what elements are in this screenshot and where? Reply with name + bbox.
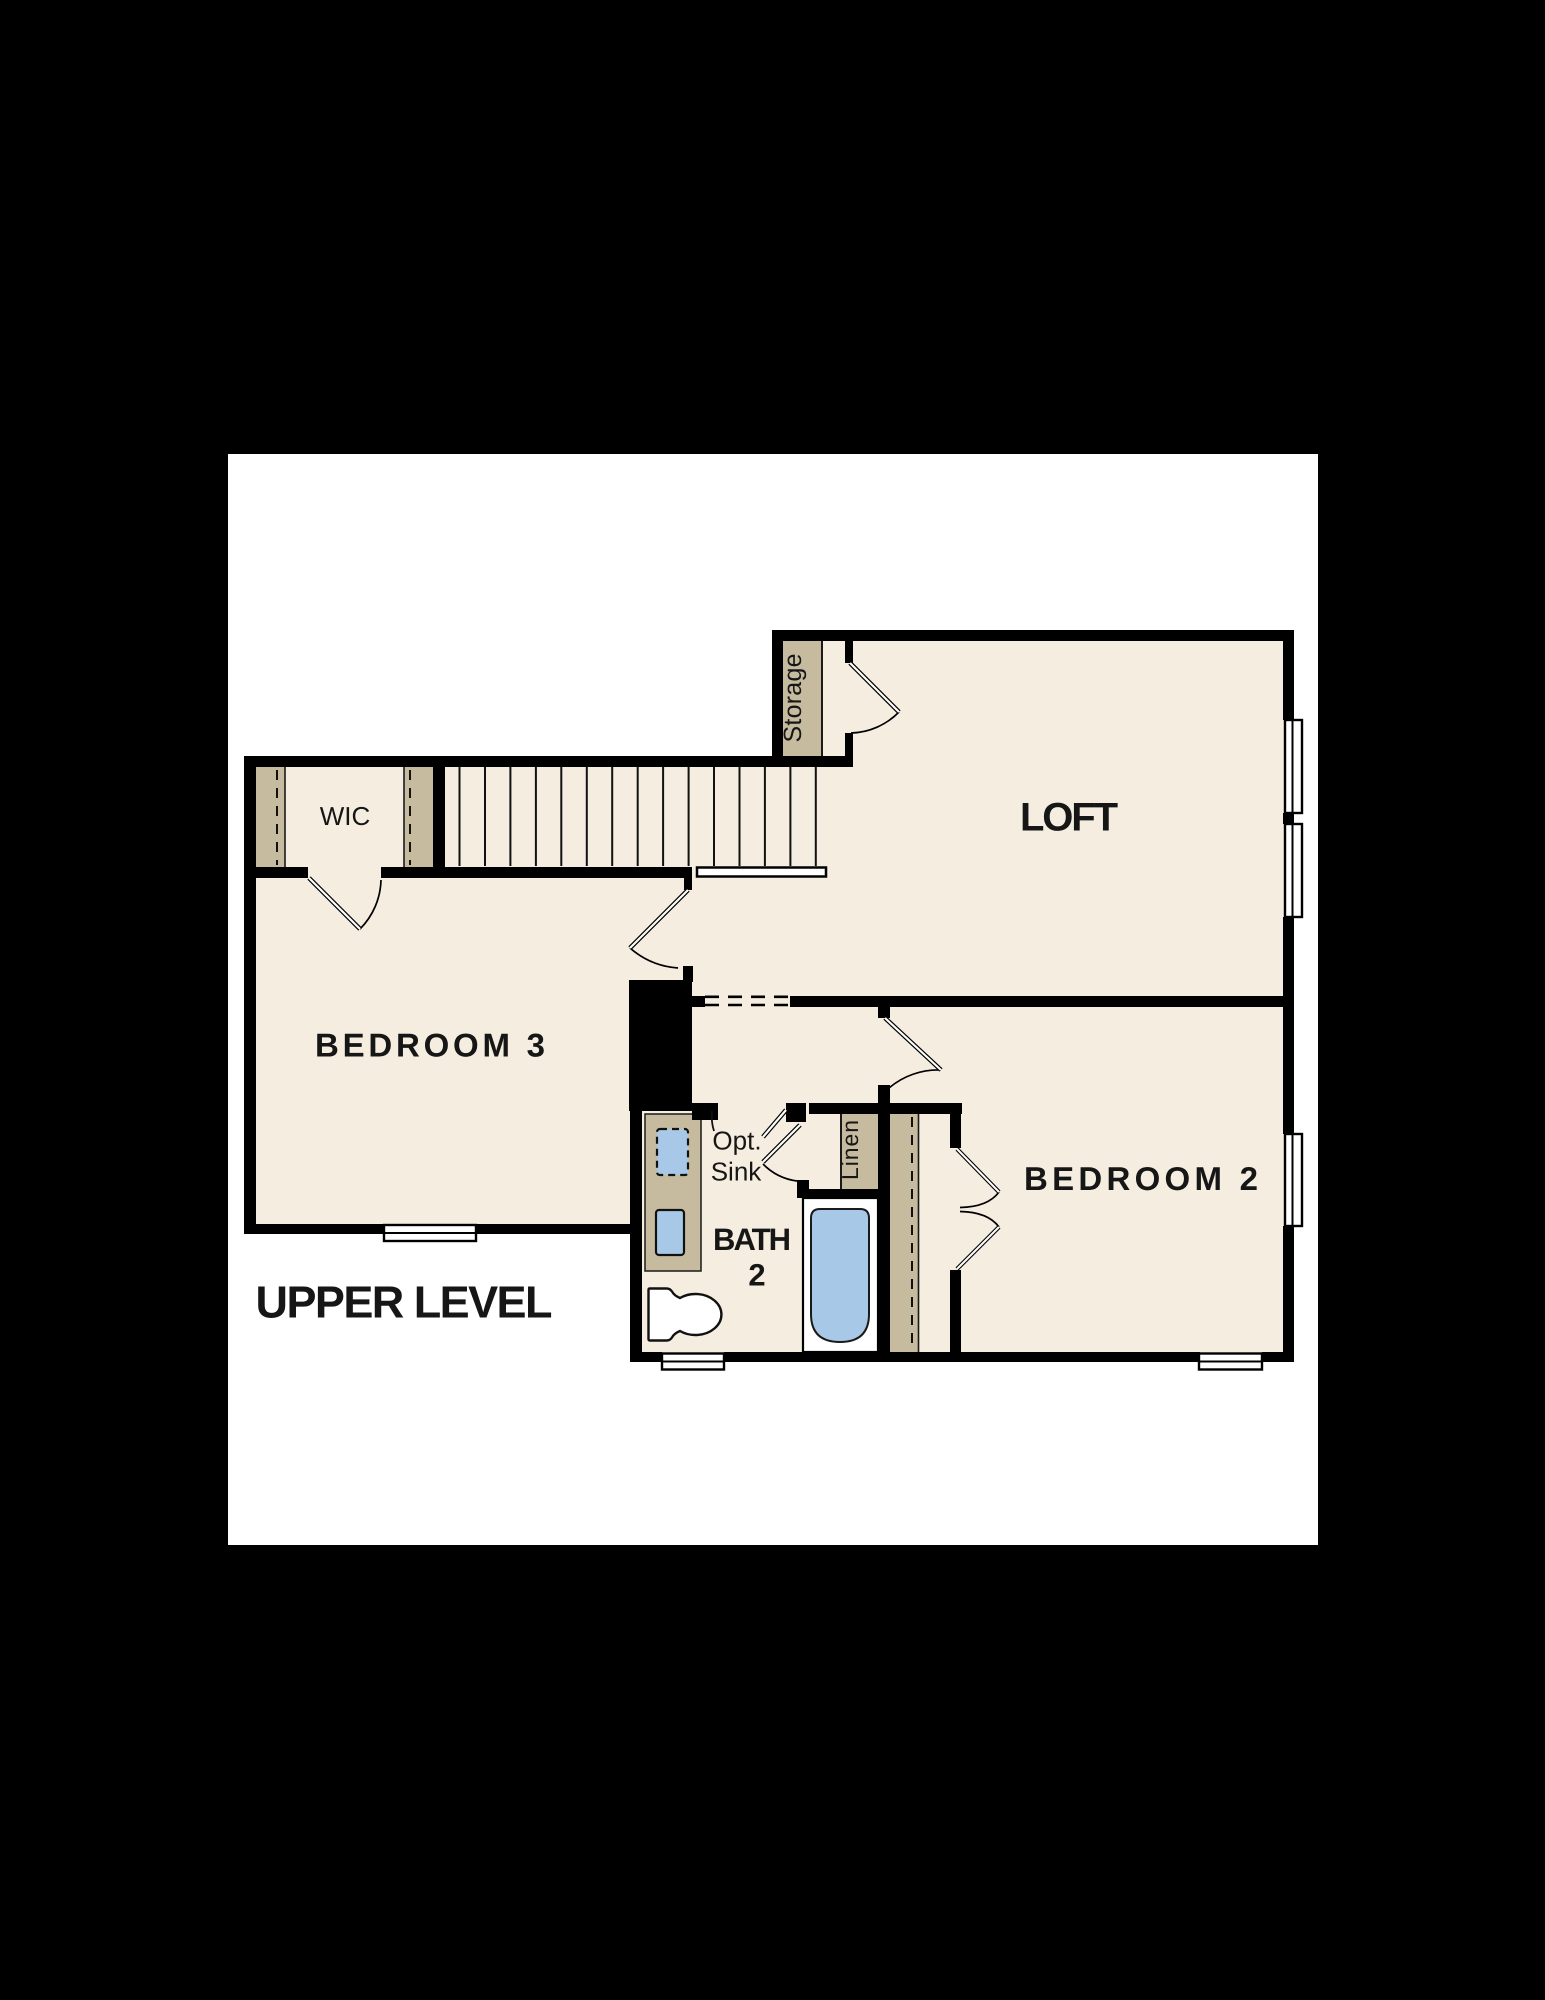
svg-text:LOFT: LOFT [1020,796,1118,840]
svg-text:2: 2 [748,1258,765,1293]
svg-text:Linen: Linen [837,1120,863,1180]
svg-text:WIC: WIC [320,801,371,831]
svg-text:Sink: Sink [711,1157,763,1187]
svg-text:Opt.: Opt. [712,1126,761,1156]
svg-text:BATH: BATH [713,1222,791,1257]
svg-text:Storage: Storage [779,654,807,743]
svg-text:UPPER LEVEL: UPPER LEVEL [256,1277,553,1328]
